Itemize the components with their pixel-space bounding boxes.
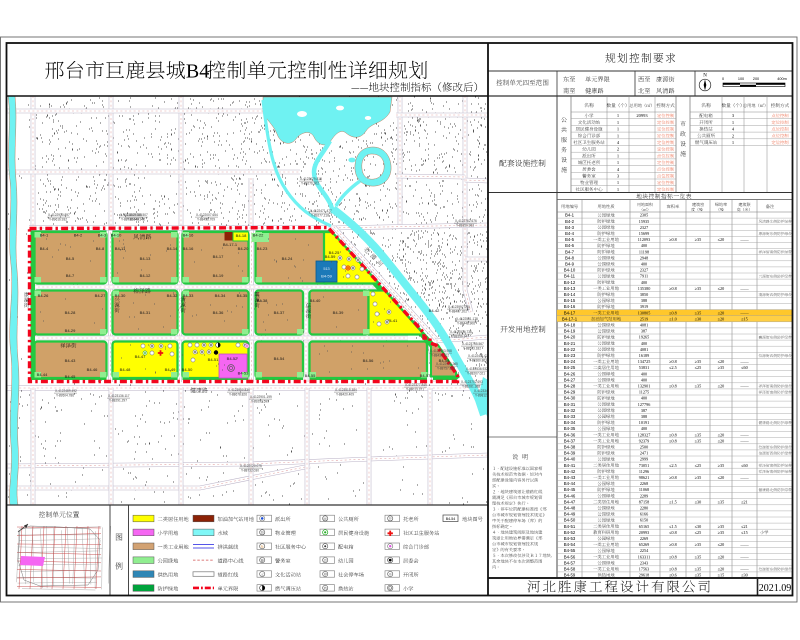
- svg-text:≥35: ≥35: [695, 554, 702, 559]
- svg-text:2948: 2948: [640, 255, 648, 260]
- svg-text:≤15: ≤15: [741, 316, 748, 321]
- svg-text:Y-88448.906: Y-88448.906: [457, 321, 475, 325]
- svg-text:4081: 4081: [640, 323, 648, 328]
- svg-text:134725: 134725: [638, 359, 651, 364]
- svg-text:X-4122581.178: X-4122581.178: [456, 317, 478, 321]
- svg-text:B4-58: B4-58: [564, 567, 576, 572]
- svg-text:Y-88207.021: Y-88207.021: [467, 371, 485, 375]
- svg-text:B4-33: B4-33: [183, 293, 194, 298]
- svg-text:B4-56: B4-56: [363, 358, 374, 363]
- svg-text:≤60: ≤60: [741, 365, 748, 370]
- svg-text:B4-54: B4-54: [564, 542, 576, 547]
- svg-text:B4-17-1: B4-17-1: [562, 316, 578, 321]
- svg-text:B4-42: B4-42: [564, 469, 576, 474]
- svg-text:3919: 3919: [640, 304, 648, 309]
- svg-text:400: 400: [641, 371, 647, 376]
- svg-text:B4-54: B4-54: [446, 517, 456, 521]
- svg-text:B4-33: B4-33: [564, 414, 576, 419]
- svg-text:3850: 3850: [640, 292, 648, 297]
- svg-text:B4-54: B4-54: [274, 356, 285, 361]
- svg-text:127796: 127796: [638, 402, 651, 407]
- svg-text:——: ——: [739, 384, 749, 389]
- svg-text:2327: 2327: [640, 268, 648, 273]
- svg-text:B4-22: B4-22: [253, 233, 264, 238]
- svg-text:B4-27: B4-27: [564, 377, 576, 382]
- svg-text:B4-45: B4-45: [65, 374, 76, 379]
- svg-text:B4-17: B4-17: [564, 310, 576, 315]
- svg-text:B4-50: B4-50: [182, 367, 193, 372]
- svg-text:B4-1: B4-1: [40, 233, 49, 238]
- svg-text:2021.09: 2021.09: [759, 583, 792, 594]
- svg-text:132901: 132901: [638, 384, 651, 389]
- svg-text:≥0.8: ≥0.8: [669, 384, 677, 389]
- svg-text:B4-41: B4-41: [564, 463, 576, 468]
- svg-text:≥35: ≥35: [695, 542, 702, 547]
- svg-text:2519: 2519: [640, 316, 648, 321]
- svg-text:B4-29: B4-29: [564, 390, 576, 395]
- svg-text:Y-89616.932: Y-89616.932: [49, 217, 67, 221]
- svg-text:B4-11: B4-11: [564, 274, 576, 279]
- svg-text:≥35: ≥35: [695, 384, 702, 389]
- svg-text:B4-50: B4-50: [564, 518, 576, 523]
- svg-text:B4-14: B4-14: [564, 292, 576, 297]
- svg-text:X-4122401.022: X-4122401.022: [468, 354, 490, 358]
- svg-text:Y-88281.388: Y-88281.388: [462, 384, 480, 388]
- svg-text:400: 400: [641, 243, 647, 248]
- svg-text:≥35: ≥35: [695, 438, 702, 443]
- svg-text:2289: 2289: [640, 493, 648, 498]
- svg-text:Y-89277.218: Y-89277.218: [311, 213, 329, 217]
- svg-text:B4-11: B4-11: [115, 246, 126, 251]
- svg-text:B4-32: B4-32: [167, 293, 178, 298]
- svg-text:≥35: ≥35: [718, 524, 725, 529]
- svg-text:≤20: ≤20: [718, 438, 725, 443]
- svg-text:6166: 6166: [640, 512, 648, 517]
- svg-text:B4-46: B4-46: [87, 367, 98, 372]
- svg-text:135380: 135380: [638, 286, 651, 291]
- svg-text:≥0.8: ≥0.8: [669, 438, 677, 443]
- svg-text:200: 200: [753, 77, 759, 81]
- svg-text:B4-39: B4-39: [564, 451, 576, 456]
- svg-text:≤35: ≤35: [695, 573, 702, 578]
- svg-text:1: 1: [732, 140, 734, 145]
- svg-text:B4-18: B4-18: [236, 233, 247, 238]
- svg-text:B4-13: B4-13: [564, 286, 576, 291]
- svg-text:B4-15: B4-15: [564, 298, 576, 303]
- svg-text:112093: 112093: [638, 237, 650, 242]
- svg-text:Y-88737.044: Y-88737.044: [121, 217, 139, 221]
- svg-text:B4-9: B4-9: [565, 262, 575, 267]
- svg-text:B4-34: B4-34: [215, 293, 226, 298]
- svg-text:B4-37: B4-37: [564, 438, 576, 443]
- svg-text:≤21: ≤21: [741, 499, 748, 504]
- svg-text:≥0.8: ≥0.8: [669, 359, 677, 364]
- svg-text:B4-10: B4-10: [564, 268, 576, 273]
- svg-text:≥35: ≥35: [695, 286, 702, 291]
- svg-text:B4-1: B4-1: [565, 213, 575, 218]
- svg-text:≤20: ≤20: [718, 432, 725, 437]
- svg-text:B4-8: B4-8: [96, 246, 105, 251]
- svg-text:B4-51: B4-51: [564, 524, 576, 529]
- svg-text:≤1.5: ≤1.5: [669, 524, 677, 529]
- svg-text:≤30: ≤30: [695, 499, 702, 504]
- svg-text:Y-88013.371: Y-88013.371: [406, 387, 424, 391]
- svg-text:Y-88420.409: Y-88420.409: [336, 392, 354, 396]
- svg-text:19265: 19265: [639, 335, 649, 340]
- svg-text:387: 387: [641, 408, 647, 413]
- svg-text:≥35: ≥35: [718, 499, 725, 504]
- svg-text:B4-3: B4-3: [98, 233, 107, 238]
- svg-text:B4-45: B4-45: [564, 487, 576, 492]
- svg-text:B4-16: B4-16: [564, 304, 576, 309]
- svg-text:B4-16: B4-16: [183, 246, 194, 251]
- svg-text:B4-53: B4-53: [238, 371, 249, 376]
- svg-text:B4-26: B4-26: [38, 293, 49, 298]
- svg-text:≤25: ≤25: [695, 365, 702, 370]
- svg-text:B4-47: B4-47: [564, 499, 576, 504]
- svg-text:——: ——: [739, 286, 749, 291]
- svg-text:≥0.8: ≥0.8: [669, 286, 677, 291]
- svg-text:B4-44: B4-44: [564, 481, 576, 486]
- svg-text:≥35: ≥35: [718, 530, 725, 535]
- svg-text:B4-17: B4-17: [213, 254, 224, 259]
- svg-text:≤20: ≤20: [718, 475, 725, 480]
- svg-text:2280: 2280: [640, 506, 648, 511]
- svg-text:15699: 15699: [639, 231, 649, 236]
- svg-text:B4-57: B4-57: [564, 560, 576, 565]
- svg-text:11296: 11296: [639, 469, 649, 474]
- svg-text:B4-39: B4-39: [333, 310, 344, 315]
- svg-text:B4-21: B4-21: [564, 341, 576, 346]
- svg-text:128327: 128327: [638, 432, 651, 437]
- svg-text:≤1.0: ≤1.0: [669, 316, 677, 321]
- svg-text:≤0.8: ≤0.8: [669, 530, 677, 535]
- svg-text:1: 1: [617, 113, 619, 118]
- svg-text:B4-43: B4-43: [564, 475, 576, 480]
- svg-text:B4-8: B4-8: [565, 255, 575, 260]
- svg-text:X-4122020.075: X-4122020.075: [240, 464, 262, 468]
- svg-text:≥0.8: ≥0.8: [669, 237, 677, 242]
- svg-text:B4-36: B4-36: [564, 432, 576, 437]
- svg-text:≤30: ≤30: [741, 573, 748, 578]
- svg-text:1: 1: [617, 120, 619, 125]
- svg-text:Y-88503.182: Y-88503.182: [463, 346, 481, 350]
- svg-text:388: 388: [641, 298, 647, 303]
- svg-text:Y-88407.202: Y-88407.202: [449, 309, 467, 313]
- svg-text:≤2.5: ≤2.5: [669, 463, 677, 468]
- svg-text:B4-24: B4-24: [282, 256, 293, 261]
- svg-text:98621: 98621: [639, 475, 649, 480]
- svg-text:B4-3: B4-3: [565, 225, 575, 230]
- svg-text:X-4122901.199: X-4122901.199: [250, 395, 272, 399]
- svg-text:≤20: ≤20: [718, 237, 725, 242]
- svg-text:X-4123702.693: X-4123702.693: [461, 380, 483, 384]
- svg-text:B4-2: B4-2: [565, 219, 575, 224]
- svg-text:11068: 11068: [639, 487, 649, 492]
- svg-text:1: 1: [617, 160, 619, 165]
- svg-text:B4-42: B4-42: [429, 308, 440, 313]
- svg-text:17563: 17563: [639, 567, 649, 572]
- svg-text:X-4122762.676: X-4122762.676: [455, 219, 477, 223]
- svg-text:——: ——: [739, 554, 749, 559]
- svg-text:387: 387: [641, 329, 647, 334]
- svg-text:B4-12: B4-12: [140, 273, 151, 278]
- svg-text:≥35: ≥35: [695, 567, 702, 572]
- svg-text:B4-22: B4-22: [564, 347, 576, 352]
- svg-text:B4-29: B4-29: [65, 328, 76, 333]
- svg-text:——: ——: [739, 237, 749, 242]
- svg-text:65269: 65269: [639, 542, 649, 547]
- svg-text:B4-31: B4-31: [140, 310, 151, 315]
- svg-text:B4-59: B4-59: [325, 254, 336, 259]
- svg-text:——: ——: [739, 359, 749, 364]
- svg-text:0: 0: [722, 77, 724, 81]
- svg-text:≤20: ≤20: [718, 310, 725, 315]
- svg-text:B4-7: B4-7: [66, 273, 75, 278]
- svg-text:≥35: ≥35: [718, 463, 725, 468]
- svg-text:B4-6: B4-6: [565, 243, 575, 248]
- svg-text:B4-14: B4-14: [167, 246, 178, 251]
- svg-text:≤20: ≤20: [718, 359, 725, 364]
- svg-text:Y-88456.709: Y-88456.709: [197, 217, 215, 221]
- svg-text:B4-20: B4-20: [238, 246, 249, 251]
- svg-text:B4-36: B4-36: [213, 310, 224, 315]
- svg-text:X-4123735.567: X-4123735.567: [462, 342, 484, 346]
- svg-text:2343: 2343: [640, 560, 648, 565]
- svg-text:B4-26: B4-26: [564, 371, 576, 376]
- svg-text:B4-48: B4-48: [120, 367, 131, 372]
- svg-text:2999: 2999: [640, 457, 648, 462]
- svg-text:11275: 11275: [639, 390, 649, 395]
- svg-text:X-4122693.958: X-4122693.958: [430, 349, 452, 353]
- svg-text:X-4122536.932: X-4122536.932: [466, 367, 488, 371]
- svg-text:20993: 20993: [636, 113, 648, 118]
- svg-text:53831: 53831: [639, 365, 649, 370]
- svg-text:11198: 11198: [639, 249, 649, 254]
- svg-text:B4-49: B4-49: [165, 367, 176, 372]
- svg-text:Y-88430.312: Y-88430.312: [431, 353, 449, 357]
- svg-text:≥0.8: ≥0.8: [669, 567, 677, 572]
- svg-text:10191: 10191: [639, 420, 649, 425]
- svg-text:≤20: ≤20: [718, 542, 725, 547]
- svg-text:≤60: ≤60: [741, 463, 748, 468]
- svg-text:≥35: ≥35: [718, 365, 725, 370]
- svg-text:≤15: ≤15: [741, 530, 748, 535]
- svg-text:≤0.6: ≤0.6: [669, 573, 677, 578]
- svg-text:X-4123869.783: X-4123869.783: [120, 213, 142, 217]
- svg-text:29618: 29618: [639, 573, 649, 578]
- svg-text:≤20: ≤20: [718, 384, 725, 389]
- svg-text:1: 1: [617, 127, 619, 132]
- svg-text:≥15: ≥15: [718, 573, 725, 578]
- svg-text:2305: 2305: [640, 213, 648, 218]
- svg-text:Y-89292.599: Y-89292.599: [251, 399, 269, 403]
- svg-text:65165: 65165: [639, 524, 649, 529]
- svg-text:B4-5: B4-5: [565, 237, 575, 242]
- svg-text:B4-35: B4-35: [564, 426, 576, 431]
- svg-text:B4-18: B4-18: [564, 323, 576, 328]
- svg-text:B4-37: B4-37: [274, 310, 285, 315]
- svg-text:1: 1: [617, 153, 619, 158]
- svg-text:B4-56: B4-56: [564, 554, 576, 559]
- svg-text:B4-38: B4-38: [564, 445, 576, 450]
- svg-text:400: 400: [641, 377, 647, 382]
- svg-text:X-4122934.245: X-4122934.245: [436, 362, 458, 366]
- svg-text:≤20: ≤20: [718, 554, 725, 559]
- svg-text:B4-35: B4-35: [237, 293, 248, 298]
- svg-text:Y-88678.826: Y-88678.826: [229, 392, 247, 396]
- svg-text:2269: 2269: [640, 536, 648, 541]
- svg-text:X-4122536.736: X-4122536.736: [450, 330, 472, 334]
- svg-text:130805: 130805: [638, 310, 651, 315]
- svg-text:——: ——: [739, 432, 749, 437]
- svg-text:B4: B4: [186, 61, 209, 83]
- svg-text:400: 400: [641, 426, 647, 431]
- svg-text:B4-23: B4-23: [564, 353, 576, 358]
- svg-text:≤30: ≤30: [695, 316, 702, 321]
- svg-text:B4-34: B4-34: [564, 420, 576, 425]
- svg-text:B4-43: B4-43: [65, 358, 76, 363]
- svg-text:15935: 15935: [639, 219, 649, 224]
- svg-text:B4-44: B4-44: [37, 372, 48, 377]
- svg-text:——: ——: [739, 310, 749, 315]
- svg-text:X-4122471.477: X-4122471.477: [310, 209, 332, 213]
- svg-text:2268: 2268: [640, 481, 648, 486]
- svg-text:Y-89504.786: Y-89504.786: [56, 393, 74, 397]
- svg-text:B4-40: B4-40: [564, 457, 576, 462]
- svg-text:X-4123136.117: X-4123136.117: [108, 394, 130, 398]
- svg-text:≥35: ≥35: [695, 310, 702, 315]
- svg-text:B4-52: B4-52: [564, 530, 576, 535]
- svg-text:92379: 92379: [639, 438, 649, 443]
- svg-text:B4-12: B4-12: [564, 280, 576, 285]
- svg-text:≥35: ≥35: [695, 237, 702, 242]
- svg-text:B4-10: B4-10: [111, 233, 122, 238]
- svg-text:≥20: ≥20: [718, 316, 725, 321]
- svg-text:Y-88356.347: Y-88356.347: [451, 334, 469, 338]
- svg-text:≥35: ≥35: [695, 475, 702, 480]
- svg-text:B4-46: B4-46: [564, 493, 576, 498]
- svg-text:1: 1: [617, 133, 619, 138]
- svg-text:B4-20: B4-20: [564, 335, 576, 340]
- svg-text:400: 400: [641, 280, 647, 285]
- svg-text:1: 1: [617, 180, 619, 185]
- svg-text:B4-7: B4-7: [565, 249, 575, 254]
- svg-text:B4-53: B4-53: [564, 536, 576, 541]
- svg-text:≥0.8: ≥0.8: [669, 432, 677, 437]
- svg-text:Y-88360.863: Y-88360.863: [469, 358, 487, 362]
- svg-text:400: 400: [641, 341, 647, 346]
- svg-text:X-4122930.897: X-4122930.897: [48, 213, 70, 217]
- svg-text:——: ——: [739, 475, 749, 480]
- svg-text:X-4123515.384: X-4123515.384: [335, 388, 357, 392]
- svg-text:B4-28: B4-28: [65, 310, 76, 315]
- svg-text:≤1.5: ≤1.5: [669, 499, 677, 504]
- svg-text:2471: 2471: [640, 451, 648, 456]
- svg-text:≥0.8: ≥0.8: [669, 542, 677, 547]
- svg-text:B4-19: B4-19: [213, 273, 224, 278]
- svg-text:≤21: ≤21: [741, 524, 748, 529]
- svg-text:1: 1: [732, 120, 734, 125]
- svg-text:B4-49: B4-49: [564, 512, 576, 517]
- svg-text:87158: 87158: [639, 499, 649, 504]
- svg-text:B4-2: B4-2: [74, 233, 83, 238]
- svg-text:7911: 7911: [640, 274, 648, 279]
- svg-text:2327: 2327: [640, 225, 648, 230]
- svg-text:6150: 6150: [640, 518, 648, 523]
- svg-text:B4-13: B4-13: [140, 256, 151, 261]
- svg-text:B4-55: B4-55: [305, 373, 316, 378]
- svg-text:N: N: [703, 74, 707, 79]
- svg-text:B4-48: B4-48: [564, 506, 576, 511]
- svg-text:≥35: ≥35: [695, 432, 702, 437]
- svg-text:400: 400: [641, 396, 647, 401]
- svg-text:Y-88757.828: Y-88757.828: [437, 366, 455, 370]
- svg-text:Y-88732.030: Y-88732.030: [241, 468, 259, 472]
- svg-text:163311: 163311: [638, 554, 650, 559]
- svg-text:20993: 20993: [639, 530, 649, 535]
- svg-text:400: 400: [641, 262, 647, 267]
- svg-text:≥0.8: ≥0.8: [669, 554, 677, 559]
- svg-text:≥0.8: ≥0.8: [669, 475, 677, 480]
- svg-text:X-4122377.845: X-4122377.845: [405, 383, 427, 387]
- svg-text:B4-5: B4-5: [66, 256, 75, 261]
- svg-text:B4-57: B4-57: [420, 373, 431, 378]
- svg-text:X-4123950.834: X-4123950.834: [228, 388, 250, 392]
- svg-text:B4-30: B4-30: [115, 293, 126, 298]
- svg-text:B4-28: B4-28: [564, 384, 576, 389]
- svg-text:2500: 2500: [640, 445, 648, 450]
- svg-text:B4-17-1: B4-17-1: [223, 242, 238, 247]
- svg-text:B4-25: B4-25: [564, 365, 576, 370]
- svg-text:1: 1: [617, 187, 619, 192]
- svg-text:≤2.5: ≤2.5: [669, 365, 677, 370]
- svg-text:≤30: ≤30: [695, 524, 702, 529]
- svg-text:Y-88291.297: Y-88291.297: [109, 398, 127, 402]
- svg-text:2: 2: [617, 147, 619, 152]
- svg-text:B4-55: B4-55: [564, 548, 576, 553]
- svg-text:388: 388: [641, 414, 647, 419]
- svg-text:B4-4: B4-4: [565, 231, 575, 236]
- svg-text:≥0.8: ≥0.8: [669, 310, 677, 315]
- svg-text:B4-23: B4-23: [257, 246, 268, 251]
- svg-text:≤20: ≤20: [718, 567, 725, 572]
- svg-text:B4-4: B4-4: [40, 246, 49, 251]
- svg-text:≤25: ≤25: [695, 530, 702, 535]
- svg-text:≥35: ≥35: [695, 359, 702, 364]
- svg-text:B4-19: B4-19: [564, 329, 576, 334]
- svg-text:——: ——: [739, 567, 749, 572]
- svg-text:B4-27: B4-27: [95, 293, 106, 298]
- svg-text:≤20: ≤20: [718, 286, 725, 291]
- svg-text:2254: 2254: [640, 548, 649, 553]
- svg-text:Y-88350.963: Y-88350.963: [456, 223, 474, 227]
- svg-text:B4-51: B4-51: [208, 357, 219, 362]
- svg-text:16189: 16189: [639, 353, 649, 358]
- svg-text:73051: 73051: [639, 463, 649, 468]
- svg-text:B4-32: B4-32: [564, 408, 576, 413]
- svg-text:≤25: ≤25: [695, 463, 702, 468]
- svg-text:B4-31: B4-31: [564, 402, 576, 407]
- svg-text:B4-52: B4-52: [227, 356, 238, 361]
- svg-text:B4-16: B4-16: [183, 233, 194, 238]
- svg-text:X-4123997.030: X-4123997.030: [448, 305, 470, 309]
- svg-text:X-4123079.818: X-4123079.818: [300, 177, 322, 181]
- svg-text:B4-30: B4-30: [564, 396, 576, 401]
- svg-text:B4-38: B4-38: [257, 298, 268, 303]
- svg-text:Y-89276.902: Y-89276.902: [301, 181, 319, 185]
- svg-text:100: 100: [738, 77, 744, 81]
